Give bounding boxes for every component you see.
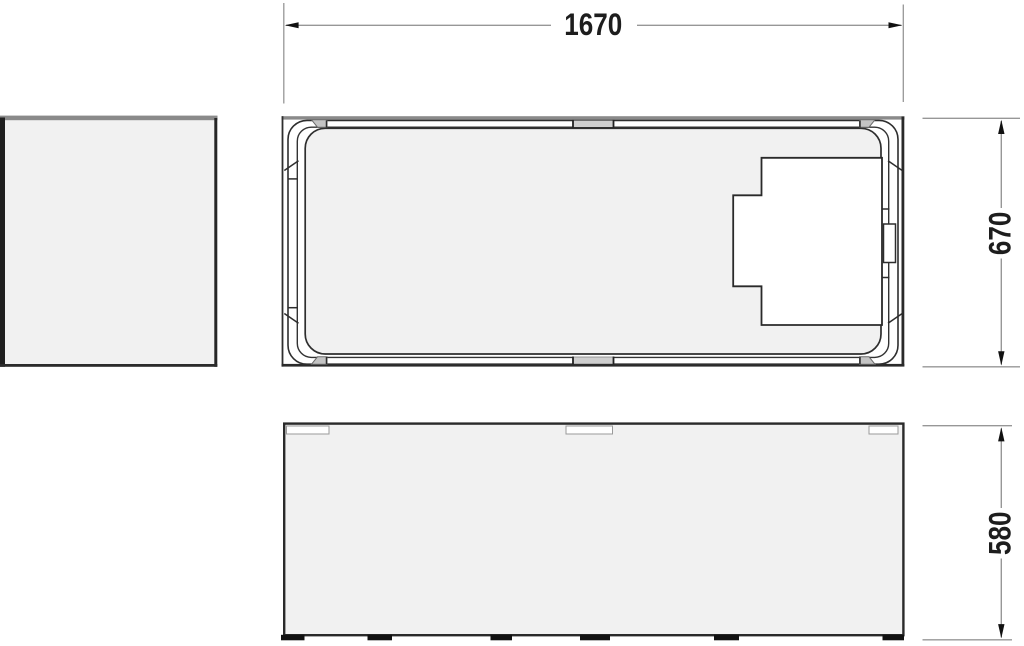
svg-text:670: 670	[982, 212, 1018, 256]
svg-text:1670: 1670	[564, 6, 622, 42]
svg-text:580: 580	[982, 512, 1018, 556]
